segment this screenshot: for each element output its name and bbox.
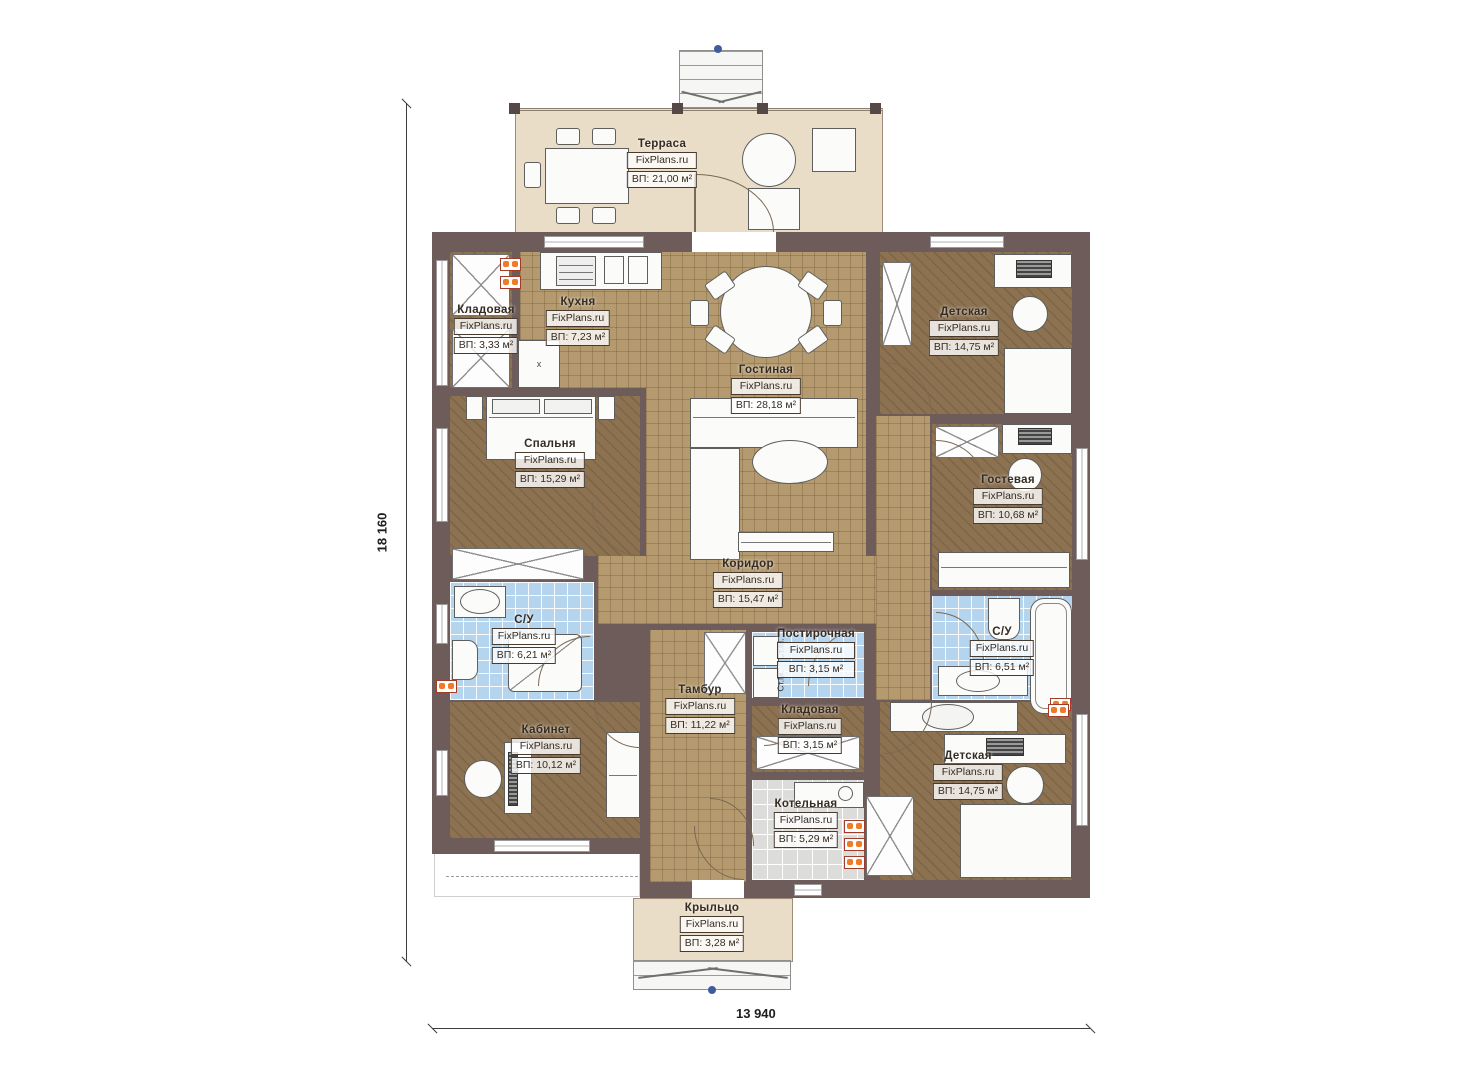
floor-corridor-v <box>876 416 930 700</box>
room-name: Котельная <box>774 798 838 810</box>
nightstand <box>598 396 615 420</box>
chair <box>556 128 580 145</box>
window-office-bottom <box>494 840 590 852</box>
sofa <box>938 552 1070 588</box>
desk-chair <box>464 760 502 798</box>
room-name: Гостевая <box>973 474 1043 486</box>
window-kitchen <box>544 236 644 248</box>
chair <box>823 300 842 326</box>
radiator-icon <box>844 838 865 851</box>
room-area: ВП: 28,18 м² <box>731 397 801 414</box>
radiator-icon <box>844 820 865 833</box>
desk-chair <box>1012 296 1048 332</box>
room-label-kladovaya1: Кладовая FixPlans.ru ВП: 3,33 м² <box>454 304 518 354</box>
lounge-chair <box>812 128 856 172</box>
built-in-wardrobe <box>452 548 584 580</box>
pillow <box>492 399 540 414</box>
dimension-line-vertical <box>406 103 407 962</box>
room-area: ВП: 6,51 м² <box>970 659 1034 676</box>
room-name: Коридор <box>713 558 783 570</box>
terrace-post <box>870 103 881 114</box>
room-area: ВП: 14,75 м² <box>933 783 1003 800</box>
room-area: ВП: 11,22 м² <box>665 717 735 734</box>
bathtub <box>1030 598 1072 714</box>
room-name: Детская <box>929 306 999 318</box>
chair <box>592 207 616 224</box>
room-name: С/У <box>970 626 1034 638</box>
room-area: ВП: 6,21 м² <box>492 647 556 664</box>
kitchen-marker-label: x <box>537 359 542 369</box>
radiator-icon <box>844 856 865 869</box>
water-heater <box>866 796 914 876</box>
sofa-corner-vertical <box>690 448 740 560</box>
boiler-sink <box>838 786 853 801</box>
brand-label: FixPlans.ru <box>929 320 999 337</box>
room-label-kids-bottom: Детская FixPlans.ru ВП: 14,75 м² <box>933 750 1003 800</box>
window-boiler <box>794 884 822 896</box>
window-kids-bottom <box>1076 714 1088 826</box>
room-label-living: Гостиная FixPlans.ru ВП: 28,18 м² <box>731 364 801 414</box>
bed <box>1004 348 1072 414</box>
room-label-boiler: Котельная FixPlans.ru ВП: 5,29 м² <box>774 798 838 848</box>
printer-icon <box>1016 260 1052 278</box>
room-label-kitchen: Кухня FixPlans.ru ВП: 7,23 м² <box>546 296 610 346</box>
room-label-corridor: Коридор FixPlans.ru ВП: 15,47 м² <box>713 558 783 608</box>
room-name: Кухня <box>546 296 610 308</box>
room-name: Кладовая <box>778 704 842 716</box>
room-area: ВП: 5,29 м² <box>774 831 838 848</box>
room-area: ВП: 3,15 м² <box>777 661 855 678</box>
room-area: ВП: 15,29 м² <box>515 471 585 488</box>
stove-icon <box>556 256 596 286</box>
radiator-icon <box>1048 704 1069 717</box>
brand-label: FixPlans.ru <box>511 738 581 755</box>
window-su-left <box>436 604 448 644</box>
marker-dot <box>714 45 722 53</box>
brand-label: FixPlans.ru <box>713 572 783 589</box>
brand-label: FixPlans.ru <box>515 452 585 469</box>
room-name: С/У <box>492 614 556 626</box>
radiator-icon <box>436 680 457 693</box>
room-name: Гостиная <box>731 364 801 376</box>
toilet-icon <box>452 640 478 680</box>
kitchen-marker-box: x <box>518 340 560 388</box>
radiator-icon <box>500 276 521 289</box>
brand-label: FixPlans.ru <box>731 378 801 395</box>
room-area: ВП: 3,28 м² <box>680 935 744 952</box>
marker-dot <box>708 986 716 994</box>
room-name: Кабинет <box>511 724 581 736</box>
room-label-office: Кабинет FixPlans.ru ВП: 10,12 м² <box>511 724 581 774</box>
room-area: ВП: 15,47 м² <box>713 591 783 608</box>
pillow <box>544 399 592 414</box>
dimension-label-height: 18 160 <box>374 513 389 553</box>
room-area: ВП: 14,75 м² <box>929 339 999 356</box>
wardrobe <box>882 262 912 346</box>
room-area: ВП: 21,00 м² <box>627 171 697 188</box>
desk-chair <box>1006 766 1044 804</box>
dining-table <box>545 148 629 204</box>
terrace-door-opening <box>692 232 776 252</box>
round-table <box>742 133 796 187</box>
brand-label: FixPlans.ru <box>454 318 518 335</box>
tv-bench <box>738 532 834 552</box>
room-label-guest: Гостевая FixPlans.ru ВП: 10,68 м² <box>973 474 1043 524</box>
terrace-stairs <box>679 50 763 108</box>
room-label-kladovaya2: Кладовая FixPlans.ru ВП: 3,15 м² <box>778 704 842 754</box>
sink-icon <box>604 256 624 284</box>
room-label-su-left: С/У FixPlans.ru ВП: 6,21 м² <box>492 614 556 664</box>
dining-table-round <box>720 266 812 358</box>
window-bedroom <box>436 428 448 522</box>
room-area: ВП: 3,33 м² <box>454 337 518 354</box>
room-name: Крыльцо <box>680 902 744 914</box>
brand-label: FixPlans.ru <box>665 698 735 715</box>
dimension-line-horizontal <box>432 1028 1090 1029</box>
room-name: Кладовая <box>454 304 518 316</box>
terrace-post <box>672 103 683 114</box>
roof-overhang-dashline <box>446 876 638 877</box>
room-name: Постирочная <box>777 628 855 640</box>
terrace-post <box>509 103 520 114</box>
room-label-laundry: Постирочная FixPlans.ru ВП: 3,15 м² <box>777 628 855 678</box>
room-label-su-right: С/У FixPlans.ru ВП: 6,51 м² <box>970 626 1034 676</box>
brand-label: FixPlans.ru <box>680 916 744 933</box>
room-area: ВП: 10,12 м² <box>511 757 581 774</box>
room-area: ВП: 10,68 м² <box>973 507 1043 524</box>
brand-label: FixPlans.ru <box>627 152 697 169</box>
entry-door-opening <box>692 880 744 898</box>
room-label-kids-top: Детская FixPlans.ru ВП: 14,75 м² <box>929 306 999 356</box>
floor-plan-canvas: 18 160 13 940 <box>0 0 1474 1080</box>
room-label-porch: Крыльцо FixPlans.ru ВП: 3,28 м² <box>680 902 744 952</box>
window-kladovaya <box>436 260 448 386</box>
room-name: Тамбур <box>665 684 735 696</box>
brand-label: FixPlans.ru <box>777 642 855 659</box>
room-label-bedroom: Спальня FixPlans.ru ВП: 15,29 м² <box>515 438 585 488</box>
brand-label: FixPlans.ru <box>774 812 838 829</box>
chair <box>592 128 616 145</box>
chair <box>524 162 541 188</box>
nightstand <box>466 396 483 420</box>
room-name: Спальня <box>515 438 585 450</box>
dimension-label-width: 13 940 <box>736 1006 776 1021</box>
brand-label: FixPlans.ru <box>778 718 842 735</box>
room-area: ВП: 7,23 м² <box>546 329 610 346</box>
coffee-table-oval <box>752 440 828 484</box>
window-office-side <box>436 750 448 796</box>
radiator-icon <box>500 258 521 271</box>
brand-label: FixPlans.ru <box>970 640 1034 657</box>
chair <box>690 300 709 326</box>
sink-icon <box>628 256 648 284</box>
room-label-tambur: Тамбур FixPlans.ru ВП: 11,22 м² <box>665 684 735 734</box>
terrace-post <box>757 103 768 114</box>
room-label-terrace: Терраса FixPlans.ru ВП: 21,00 м² <box>627 138 697 188</box>
sink-basin <box>460 589 500 614</box>
bed <box>960 804 1072 878</box>
printer-icon <box>1018 428 1052 445</box>
brand-label: FixPlans.ru <box>492 628 556 645</box>
window-kids-top <box>930 236 1004 248</box>
room-area: ВП: 3,15 м² <box>778 737 842 754</box>
room-name: Терраса <box>627 138 697 150</box>
chair <box>556 207 580 224</box>
window-guest <box>1076 448 1088 560</box>
brand-label: FixPlans.ru <box>546 310 610 327</box>
brand-label: FixPlans.ru <box>973 488 1043 505</box>
room-name: Детская <box>933 750 1003 762</box>
brand-label: FixPlans.ru <box>933 764 1003 781</box>
